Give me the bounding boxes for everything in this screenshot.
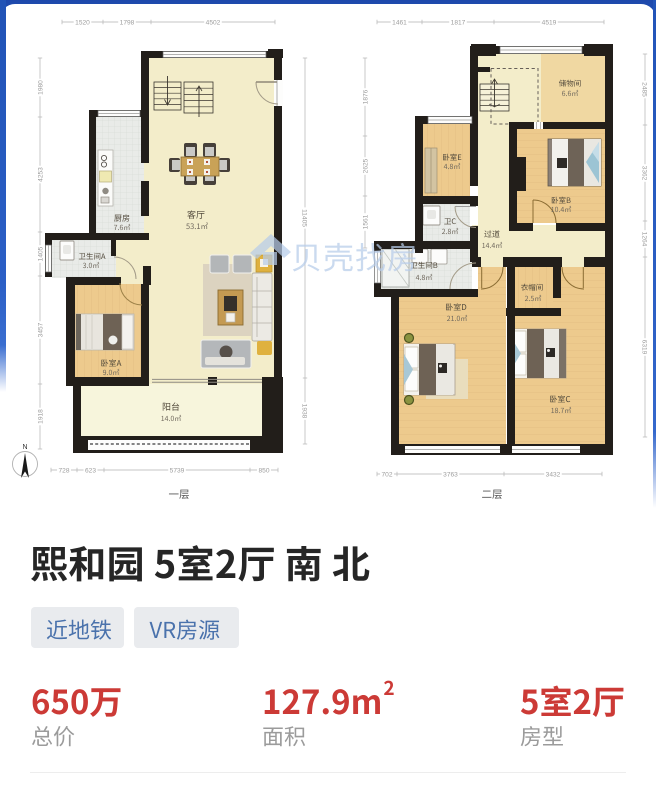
svg-text:1461: 1461 xyxy=(392,19,407,26)
svg-text:5739: 5739 xyxy=(170,467,185,474)
svg-text:1561: 1561 xyxy=(362,214,369,229)
svg-text:2485: 2485 xyxy=(641,82,648,97)
svg-text:6319: 6319 xyxy=(641,340,648,355)
svg-text:1405: 1405 xyxy=(37,246,44,261)
svg-text:2625: 2625 xyxy=(362,158,369,173)
svg-text:4519: 4519 xyxy=(542,19,557,26)
svg-text:850: 850 xyxy=(258,467,269,474)
svg-text:1938: 1938 xyxy=(301,404,308,419)
svg-text:702: 702 xyxy=(381,471,392,478)
svg-text:4253: 4253 xyxy=(37,167,44,182)
svg-text:1876: 1876 xyxy=(362,89,369,104)
svg-text:1817: 1817 xyxy=(451,19,466,26)
svg-text:623: 623 xyxy=(85,467,96,474)
svg-text:4502: 4502 xyxy=(206,19,221,26)
svg-text:3432: 3432 xyxy=(546,471,561,478)
svg-text:3362: 3362 xyxy=(641,166,648,181)
svg-text:1520: 1520 xyxy=(75,19,90,26)
svg-text:1798: 1798 xyxy=(120,19,135,26)
svg-text:3457: 3457 xyxy=(37,322,44,337)
svg-text:11405: 11405 xyxy=(301,209,308,227)
svg-text:728: 728 xyxy=(58,467,69,474)
svg-text:N: N xyxy=(22,444,27,451)
svg-text:3763: 3763 xyxy=(443,471,458,478)
svg-text:1264: 1264 xyxy=(641,232,648,247)
svg-text:1918: 1918 xyxy=(37,409,44,424)
svg-text:1980: 1980 xyxy=(37,80,44,95)
